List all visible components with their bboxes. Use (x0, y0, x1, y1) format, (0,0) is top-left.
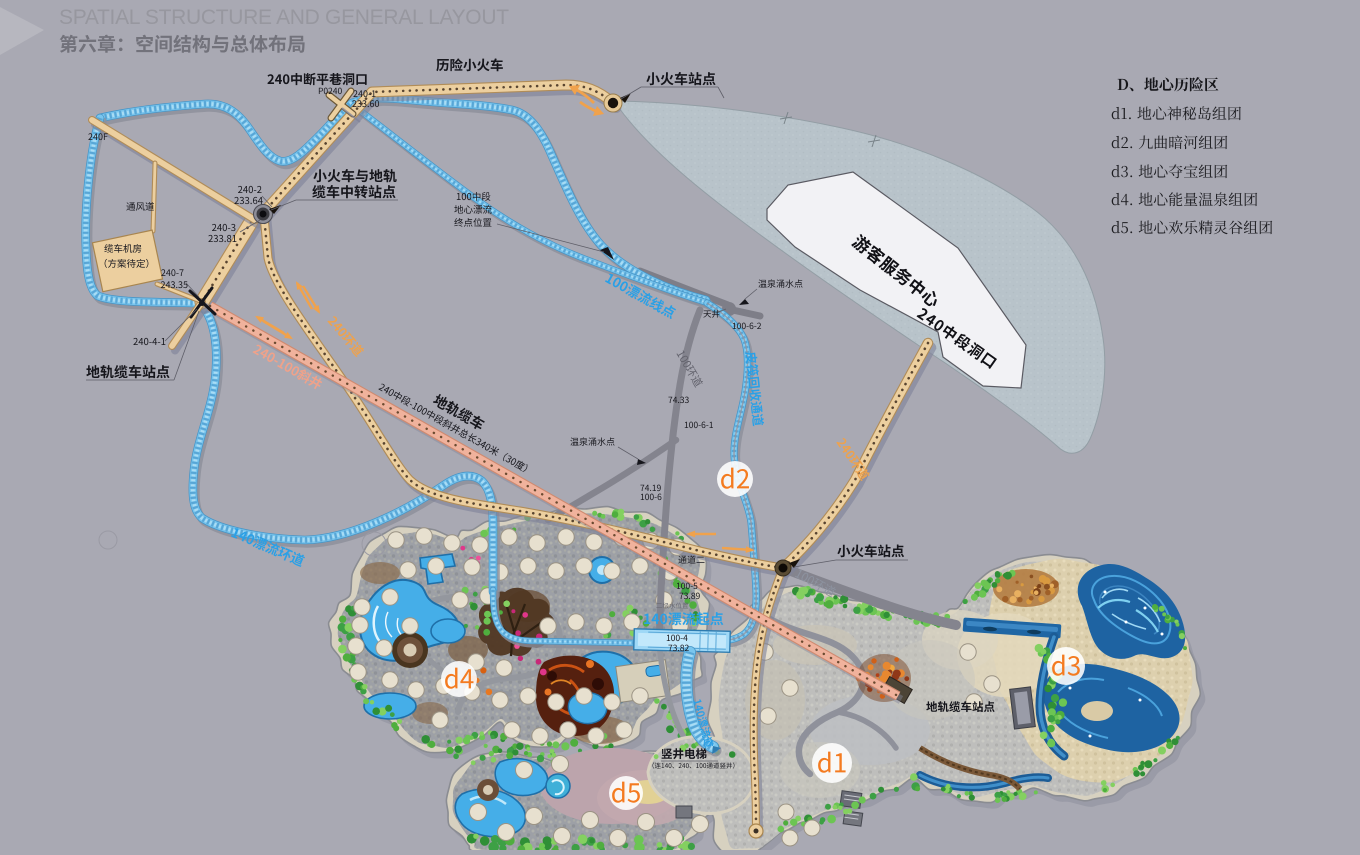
svg-text:SPATIAL STRUCTURE AND GENERAL: SPATIAL STRUCTURE AND GENERAL LAYOUT (59, 6, 509, 29)
